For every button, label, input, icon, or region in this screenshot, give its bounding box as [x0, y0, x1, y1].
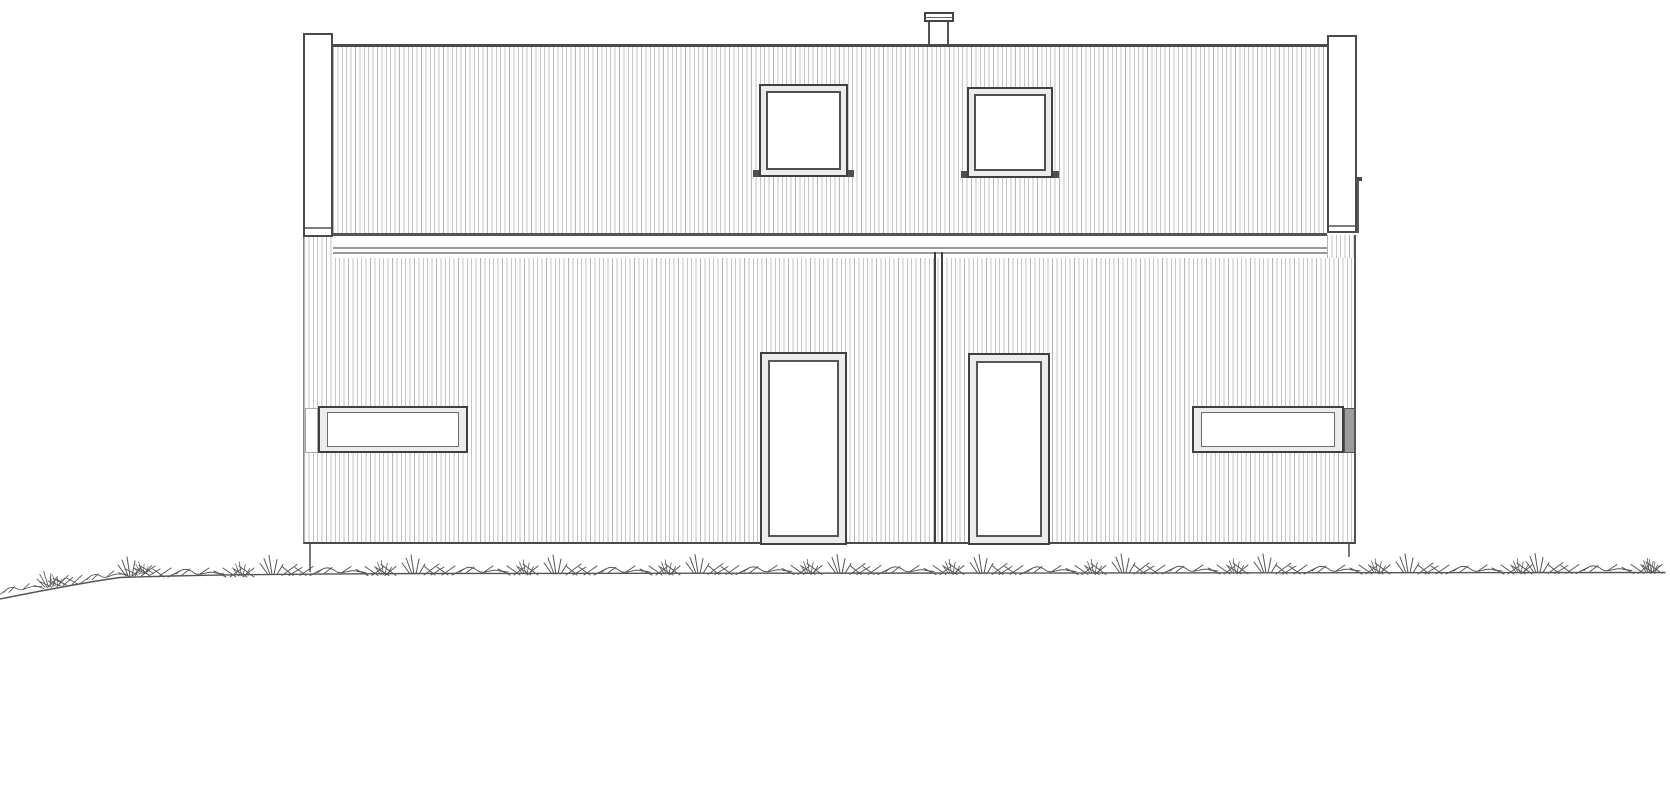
right-corner-joint-line: [1329, 225, 1355, 227]
roof-edge-line: [333, 44, 1327, 47]
strip-window-left: [318, 406, 468, 453]
ground-and-grass: [0, 540, 1670, 620]
right-corner-lower-strip: [1327, 235, 1356, 258]
entrance-door-left: [760, 352, 847, 545]
left-corner-board: [303, 33, 333, 237]
fascia-band-line-lower: [333, 252, 1327, 254]
fascia-band: [333, 236, 1327, 258]
left-corner-lower-strip: [303, 237, 333, 258]
fascia-band-line-upper: [333, 247, 1327, 249]
strip-window-right-corner-return: [1344, 408, 1355, 453]
vent-cap-line: [926, 17, 952, 18]
upper-window-right: [967, 87, 1053, 178]
upper-window-left: [759, 84, 848, 177]
entrance-door-right: [968, 353, 1050, 545]
strip-window-right-glass: [1201, 412, 1335, 447]
upper-window-right-glass: [974, 94, 1046, 171]
strip-window-left-corner-return: [305, 408, 318, 453]
right-corner-board: [1327, 35, 1357, 233]
party-wall-line-left: [934, 252, 936, 544]
party-wall-line-right: [941, 252, 943, 544]
downpipe-line: [1357, 181, 1359, 233]
strip-window-right: [1192, 406, 1344, 453]
entrance-door-right-leaf: [976, 361, 1042, 537]
elevation-drawing: [0, 0, 1670, 800]
left-corner-joint-line: [305, 227, 331, 229]
strip-window-left-glass: [327, 412, 459, 447]
upper-window-left-glass: [766, 91, 841, 170]
entrance-door-left-leaf: [768, 360, 839, 537]
roof-vent-cap: [924, 12, 954, 22]
